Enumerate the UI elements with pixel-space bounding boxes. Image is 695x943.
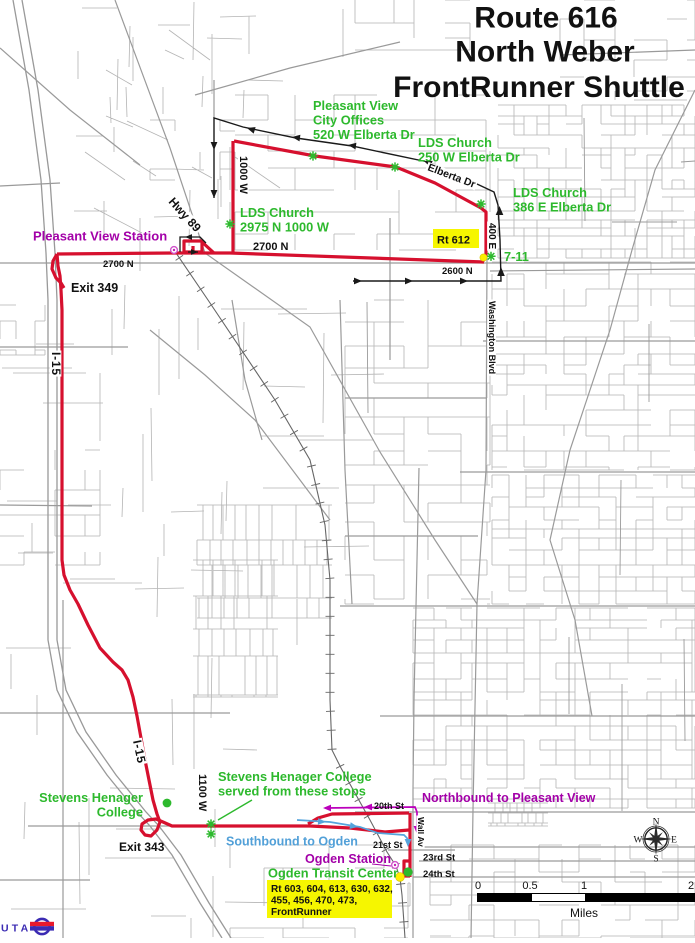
svg-text:24th St: 24th St xyxy=(423,869,456,880)
svg-text:0.5: 0.5 xyxy=(522,880,537,892)
svg-text:FrontRunner: FrontRunner xyxy=(271,907,332,918)
svg-text:7-11: 7-11 xyxy=(504,249,529,264)
svg-text:21st St: 21st St xyxy=(373,840,403,850)
svg-text:Rt 603, 604, 613, 630, 632,: Rt 603, 604, 613, 630, 632, xyxy=(271,884,393,895)
svg-text:Exit 343: Exit 343 xyxy=(119,840,165,854)
svg-text:0: 0 xyxy=(475,880,481,892)
svg-text:LDS Church: LDS Church xyxy=(513,185,587,200)
svg-text:Route 616: Route 616 xyxy=(474,2,617,35)
svg-text:FrontRunner Shuttle: FrontRunner Shuttle xyxy=(393,71,685,104)
svg-text:Stevens Henager College: Stevens Henager College xyxy=(218,769,372,784)
svg-text:2: 2 xyxy=(688,880,694,892)
svg-text:S: S xyxy=(653,855,658,865)
svg-text:Wall Av: Wall Av xyxy=(416,817,426,847)
svg-text:Ogden Transit Center: Ogden Transit Center xyxy=(268,866,398,881)
svg-text:Miles: Miles xyxy=(570,906,598,920)
svg-text:23rd St: 23rd St xyxy=(423,853,456,864)
svg-text:Exit 349: Exit 349 xyxy=(71,281,118,295)
svg-text:LDS Church: LDS Church xyxy=(240,205,314,220)
svg-text:2975 N 1000 W: 2975 N 1000 W xyxy=(240,220,330,235)
svg-text:520 W Elberta Dr: 520 W Elberta Dr xyxy=(313,127,415,142)
svg-text:Rt 612: Rt 612 xyxy=(437,235,470,247)
svg-text:Washington Blvd: Washington Blvd xyxy=(487,301,497,374)
svg-text:W: W xyxy=(634,836,643,846)
svg-text:Southbound to Ogden: Southbound to Ogden xyxy=(226,835,358,849)
svg-text:Northbound to Pleasant View: Northbound to Pleasant View xyxy=(422,791,596,805)
svg-text:E: E xyxy=(671,836,677,846)
svg-text:Stevens Henager: Stevens Henager xyxy=(39,790,143,805)
svg-text:Ogden Station: Ogden Station xyxy=(305,852,391,866)
svg-text:Pleasant View: Pleasant View xyxy=(313,98,398,113)
svg-text:400 E: 400 E xyxy=(486,223,497,249)
svg-text:Pleasant View Station: Pleasant View Station xyxy=(33,229,167,244)
svg-text:LDS Church: LDS Church xyxy=(418,135,492,150)
svg-text:I-15: I-15 xyxy=(49,352,63,376)
svg-text:North Weber: North Weber xyxy=(455,36,635,69)
svg-text:City Offices: City Offices xyxy=(313,113,384,128)
svg-text:455, 456, 470, 473,: 455, 456, 470, 473, xyxy=(271,896,357,907)
svg-text:College: College xyxy=(97,805,143,820)
svg-text:served from these stops: served from these stops xyxy=(218,784,366,799)
svg-text:2600 N: 2600 N xyxy=(442,266,473,277)
svg-text:2700 N: 2700 N xyxy=(253,241,289,253)
svg-text:2700 N: 2700 N xyxy=(103,259,134,270)
svg-text:20th St: 20th St xyxy=(374,801,404,811)
svg-text:1: 1 xyxy=(581,880,587,892)
svg-text:N: N xyxy=(653,818,660,828)
svg-text:UTA: UTA xyxy=(1,923,31,935)
svg-text:1100 W: 1100 W xyxy=(196,774,208,812)
svg-text:1000 W: 1000 W xyxy=(237,156,249,195)
svg-text:386 E Elberta Dr: 386 E Elberta Dr xyxy=(513,200,611,215)
